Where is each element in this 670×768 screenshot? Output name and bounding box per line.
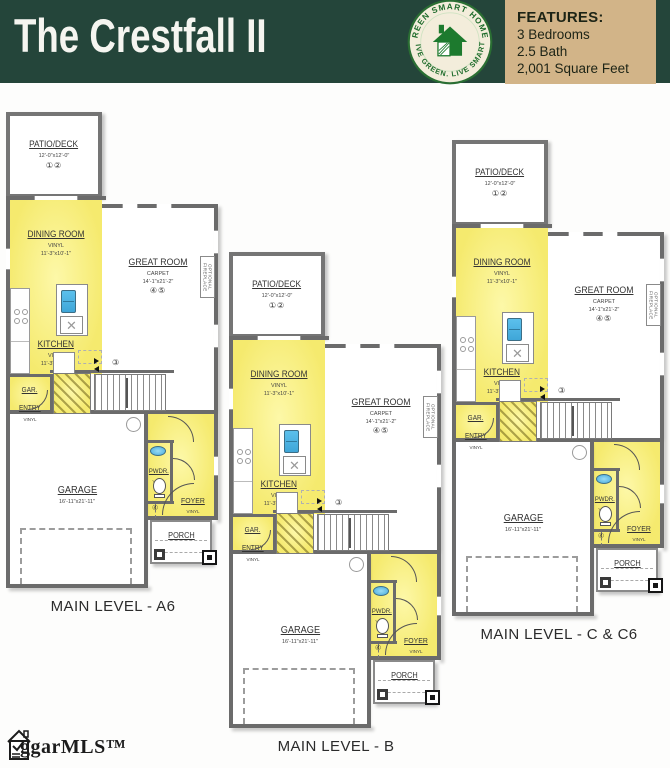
kitchen-counter	[10, 288, 30, 374]
dining-room-label: DINING ROOM VINYL 11'-3"x10'-1"	[456, 252, 548, 285]
wall	[229, 514, 277, 517]
great-room-label: GREAT ROOM CARPET 14'-1"x21'-2" ④⑤	[325, 392, 437, 435]
window	[568, 232, 584, 236]
floor-plan-a6: PATIO/DECK 12'-0"x12'-0" ①②	[4, 112, 222, 622]
door-swing-arrow-icon	[317, 506, 322, 512]
window	[214, 324, 218, 348]
kitchen-sink-icon	[61, 290, 76, 313]
toilet-tank-icon	[377, 634, 388, 638]
stairs-hatched	[53, 373, 91, 414]
stove-burner-icon	[22, 318, 28, 324]
garage-label: GARAGE 16'-11"x21'-11"	[456, 508, 590, 534]
stove-burner-icon	[14, 318, 20, 324]
toilet-icon	[599, 506, 612, 522]
porch-label: PORCH	[375, 665, 433, 683]
door-swing-arrow-icon	[540, 386, 545, 392]
mls-watermark: ggarMLS™	[2, 726, 142, 766]
porch-column	[154, 549, 165, 560]
toilet-tank-icon	[600, 522, 611, 526]
window	[156, 204, 172, 208]
porch-label: PORCH	[598, 553, 656, 571]
stairs-hatched	[499, 401, 537, 442]
floor-plan-b: PATIO/DECK 12'-0"x12'-0" ①②	[227, 252, 445, 762]
stairs-hatched	[276, 513, 314, 554]
window	[437, 370, 441, 394]
stove-burner-icon	[237, 458, 243, 464]
porch-column	[377, 689, 388, 700]
pantry-cabinet	[53, 352, 75, 374]
stairs-rail	[126, 378, 128, 408]
window	[345, 344, 361, 348]
counter-divider	[11, 341, 29, 342]
pantry-cabinet	[276, 492, 298, 514]
mls-watermark-text: ggarMLS™	[20, 736, 126, 759]
stove-burner-icon	[237, 449, 243, 455]
foyer-key-note: ④	[598, 532, 604, 540]
stairs-treads	[317, 514, 389, 551]
patio-key-notes: ①②	[229, 301, 325, 310]
plan-caption: MAIN LEVEL - B	[227, 738, 445, 755]
great-room-key-notes: ④⑤	[102, 286, 214, 295]
porch: PORCH	[373, 660, 435, 704]
wall	[452, 612, 594, 616]
stairs-treads	[540, 402, 612, 439]
stove-burner-icon	[460, 337, 466, 343]
great-room-label: GREAT ROOM CARPET 14'-1"x21'-2" ④⑤	[548, 280, 660, 323]
dining-room-label: DINING ROOM VINYL 11'-3"x10'-1"	[233, 364, 325, 397]
plan-caption: MAIN LEVEL - C & C6	[450, 626, 668, 643]
garage-door-dashed	[243, 668, 355, 724]
wall	[6, 584, 148, 588]
window	[437, 596, 441, 616]
porch: PORCH	[596, 548, 658, 592]
kitchen-sink-icon	[507, 318, 522, 341]
dining-room-label: DINING ROOM VINYL 11'-3"x10'-1"	[10, 224, 102, 257]
window	[660, 258, 664, 282]
stove-burner-icon	[460, 346, 466, 352]
flyer-page: The Crestfall II FEATURES: 3 Bedrooms 2.…	[0, 0, 670, 768]
ceiling-fixture-icon	[349, 557, 364, 572]
optional-fireplace-box: OPTIONAL FIREPLACE	[423, 396, 438, 438]
porch-column	[600, 577, 611, 588]
patio-door	[257, 336, 301, 340]
patio-door	[34, 196, 78, 200]
window	[437, 464, 441, 488]
window	[660, 484, 664, 504]
garage-label: GARAGE 16'-11"x21'-11"	[233, 620, 367, 646]
stove-burner-icon	[245, 458, 251, 464]
patio-key-notes: ①②	[6, 161, 102, 170]
foyer-key-note: ④	[375, 644, 381, 652]
great-room-label: GREAT ROOM CARPET 14'-1"x21'-2" ④⑤	[102, 252, 214, 295]
door-swing-arrow-icon	[94, 366, 99, 372]
patio-label: PATIO/DECK 12'-0"x12'-0" ①②	[452, 162, 548, 198]
optional-fireplace-box: OPTIONAL FIREPLACE	[200, 256, 215, 298]
plan-caption: MAIN LEVEL - A6	[4, 598, 222, 615]
great-room-key-notes: ④⑤	[548, 314, 660, 323]
sink-icon	[596, 474, 612, 484]
porch-label: PORCH	[152, 525, 210, 543]
kitchen-sink-icon	[284, 430, 299, 453]
window	[602, 232, 618, 236]
dishwasher-icon: ✕	[60, 316, 83, 334]
stairs-key-note: ③	[112, 358, 119, 367]
garage-door-dashed	[466, 556, 578, 612]
sink-icon	[373, 586, 389, 596]
stairs-rail	[572, 406, 574, 436]
floor-plan-c-c6: PATIO/DECK 12'-0"x12'-0" ①②	[450, 140, 668, 650]
stove-burner-icon	[14, 309, 20, 315]
stove-burner-icon	[468, 337, 474, 343]
wall	[229, 724, 371, 728]
ceiling-fixture-icon	[126, 417, 141, 432]
porch-column	[425, 690, 440, 705]
door-swing-arrow-icon	[540, 394, 545, 400]
stove-burner-icon	[245, 449, 251, 455]
toilet-icon	[153, 478, 166, 494]
toilet-tank-icon	[154, 494, 165, 498]
porch: PORCH	[150, 520, 212, 564]
porch-column	[648, 578, 663, 593]
window	[214, 456, 218, 476]
window	[660, 352, 664, 376]
porch-column	[202, 550, 217, 565]
sink-icon	[150, 446, 166, 456]
door-swing-arrow-icon	[317, 498, 322, 504]
pantry-cabinet	[499, 380, 521, 402]
kitchen-counter	[456, 316, 476, 402]
toilet-icon	[376, 618, 389, 634]
stove-burner-icon	[468, 346, 474, 352]
foyer-key-note: ④	[152, 504, 158, 512]
counter-divider	[457, 369, 475, 370]
floor-plans-layer: PATIO/DECK 12'-0"x12'-0" ①②	[0, 0, 670, 768]
stairs-rail	[349, 518, 351, 548]
garage-door-dashed	[20, 528, 132, 584]
window	[379, 344, 395, 348]
patio-label: PATIO/DECK 12'-0"x12'-0" ①②	[229, 274, 325, 310]
patio-door	[480, 224, 524, 228]
kitchen-island: ✕	[502, 312, 534, 364]
optional-fireplace-box: OPTIONAL FIREPLACE	[646, 284, 661, 326]
window	[122, 204, 138, 208]
counter-divider	[234, 481, 252, 482]
stairs-key-note: ③	[558, 386, 565, 395]
ceiling-fixture-icon	[572, 445, 587, 460]
patio-key-notes: ①②	[452, 189, 548, 198]
dishwasher-icon: ✕	[283, 456, 306, 474]
kitchen-island: ✕	[279, 424, 311, 476]
wall	[6, 374, 54, 377]
stairs-treads	[94, 374, 166, 411]
kitchen-counter	[233, 428, 253, 514]
great-room-key-notes: ④⑤	[325, 426, 437, 435]
garage-label: GARAGE 16'-11"x21'-11"	[10, 480, 144, 506]
dishwasher-icon: ✕	[506, 344, 529, 362]
door-swing-arrow-icon	[94, 358, 99, 364]
window	[214, 230, 218, 254]
stove-burner-icon	[22, 309, 28, 315]
kitchen-island: ✕	[56, 284, 88, 336]
patio-label: PATIO/DECK 12'-0"x12'-0" ①②	[6, 134, 102, 170]
stairs-key-note: ③	[335, 498, 342, 507]
wall	[452, 402, 500, 405]
